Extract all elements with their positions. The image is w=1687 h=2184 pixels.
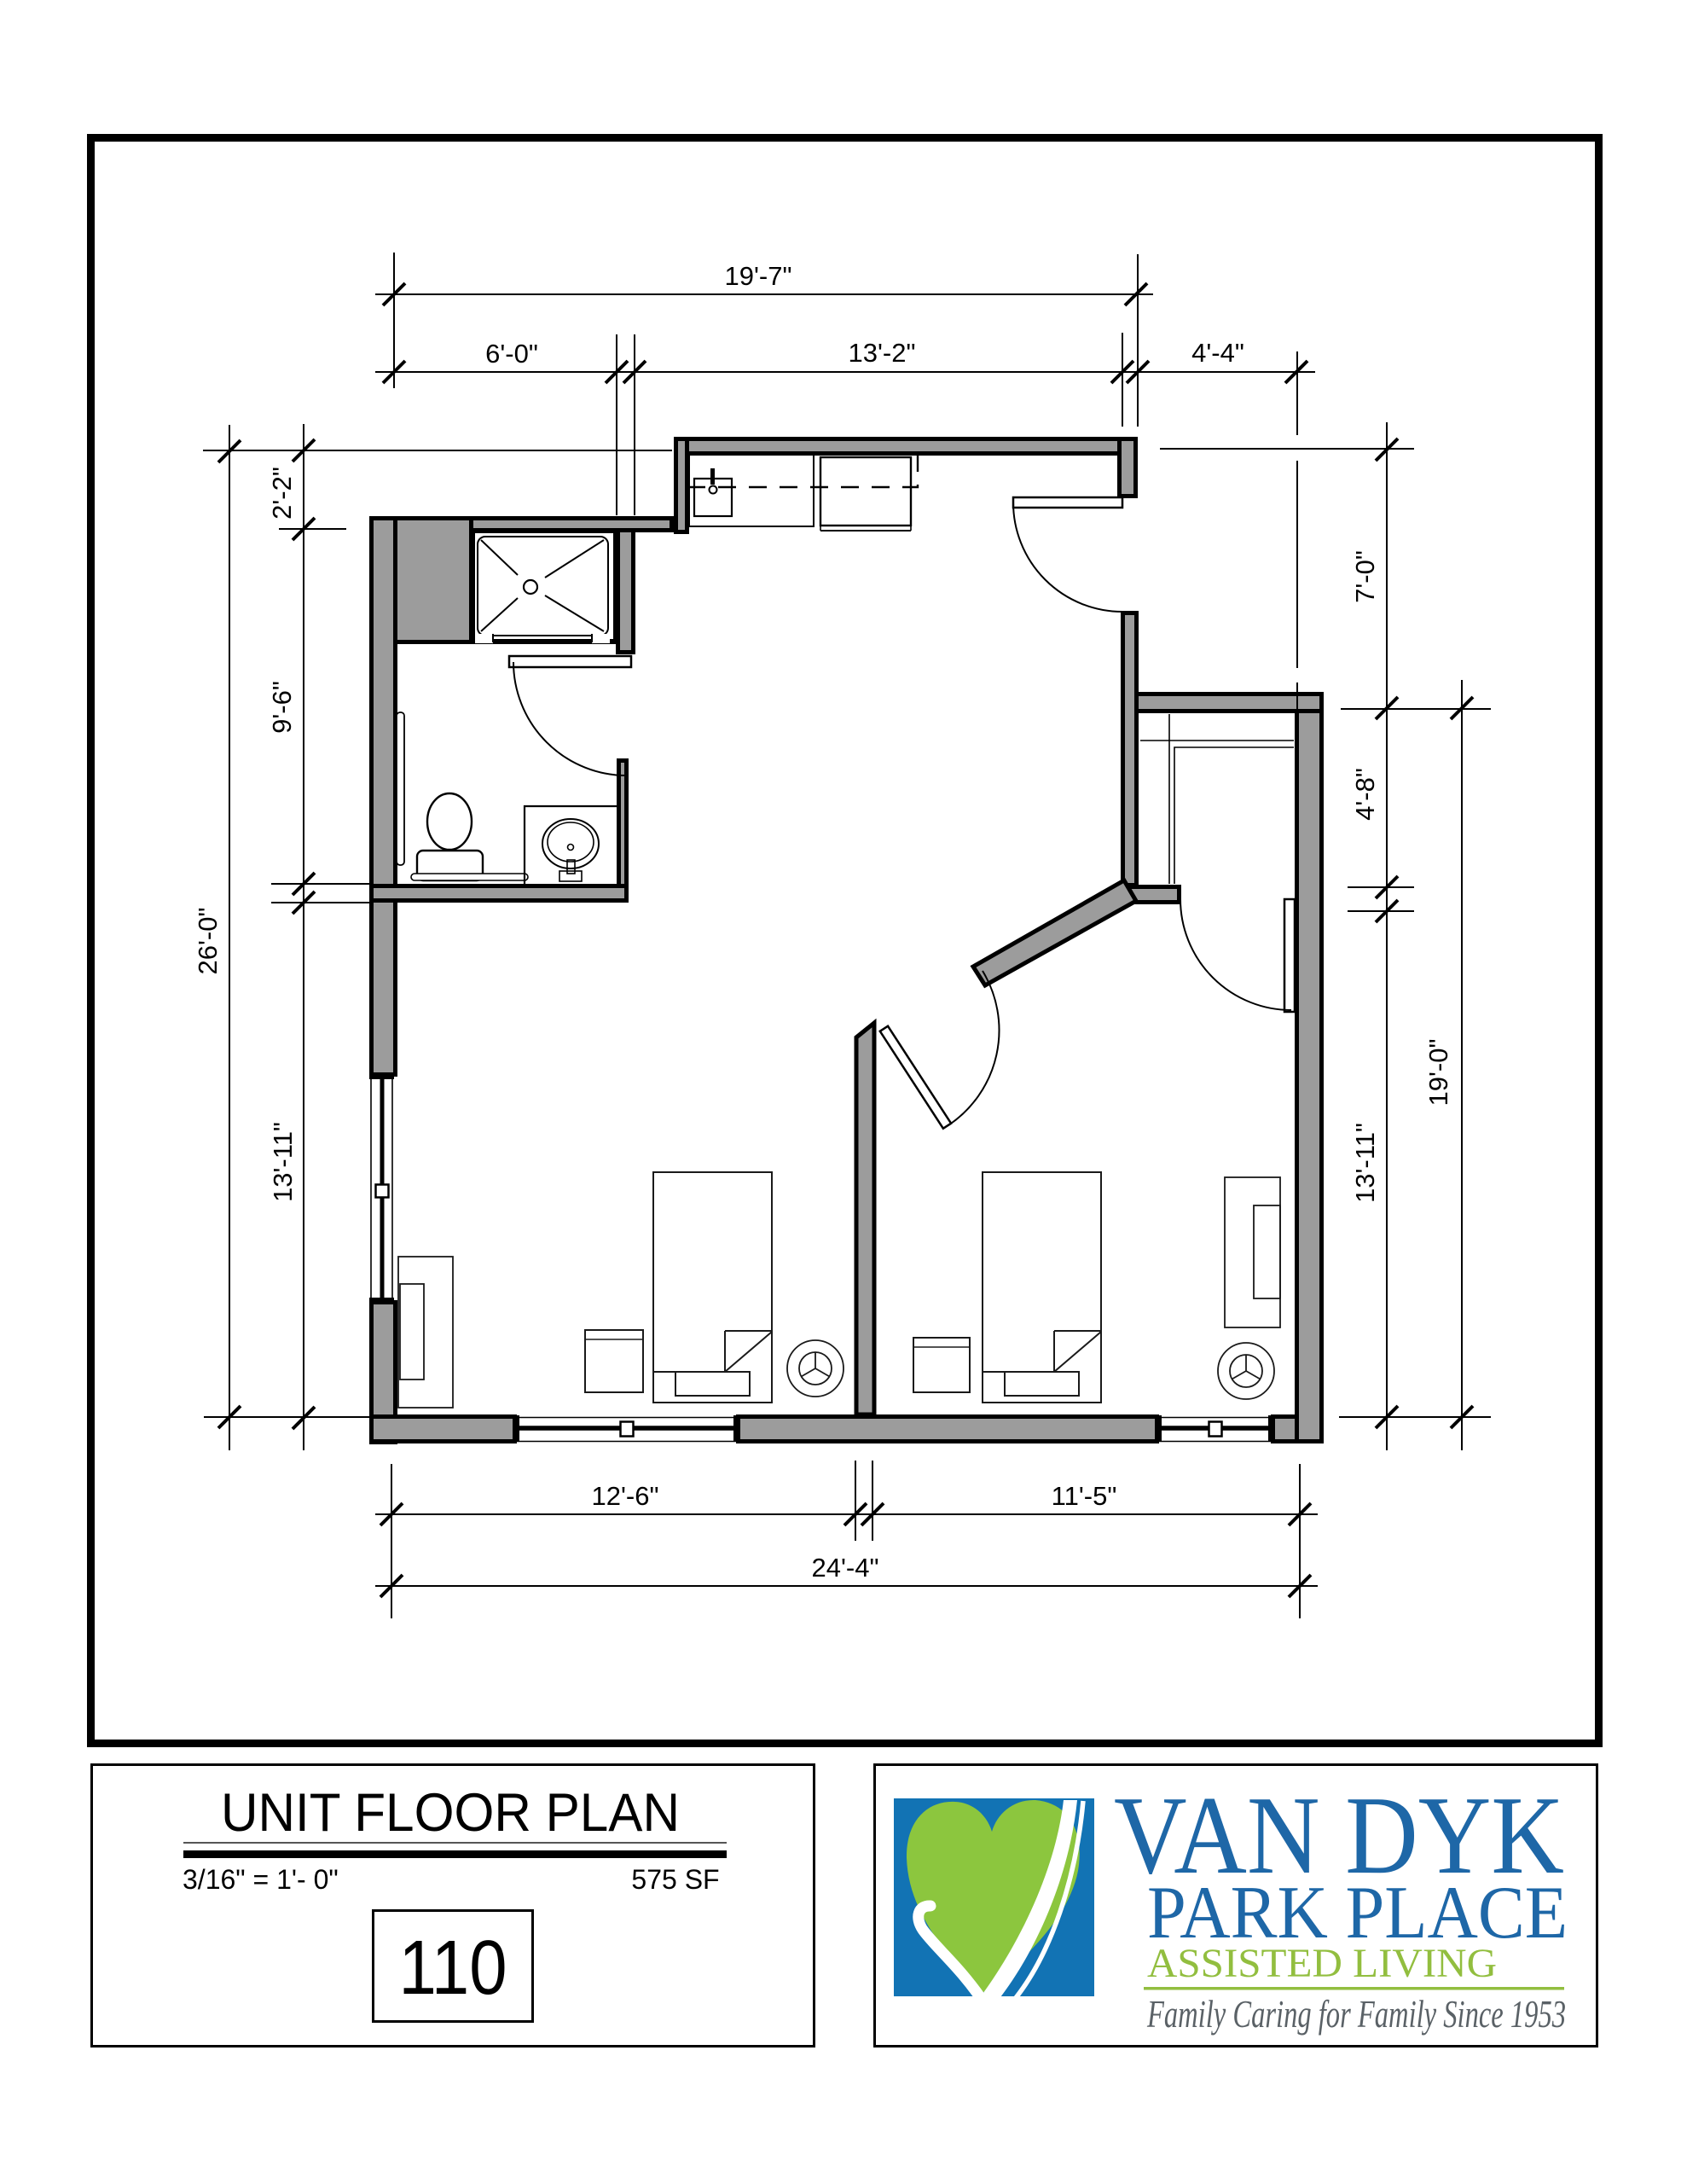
svg-text:13'-11": 13'-11"	[268, 1122, 298, 1202]
svg-text:UNIT FLOOR PLAN: UNIT FLOOR PLAN	[221, 1783, 680, 1843]
svg-text:3/16" = 1'- 0": 3/16" = 1'- 0"	[183, 1864, 339, 1895]
svg-text:11'-5": 11'-5"	[1052, 1481, 1117, 1511]
svg-text:Family Caring for Family Since: Family Caring for Family Since 1953	[1146, 1993, 1566, 2036]
svg-text:13'-11": 13'-11"	[1350, 1123, 1380, 1203]
svg-text:4'-8": 4'-8"	[1350, 768, 1380, 821]
svg-text:110: 110	[399, 1926, 507, 2011]
svg-text:26'-0": 26'-0"	[193, 908, 223, 975]
svg-text:4'-4": 4'-4"	[1191, 338, 1244, 368]
svg-text:7'-0": 7'-0"	[1350, 550, 1380, 603]
svg-text:24'-4": 24'-4"	[812, 1553, 879, 1583]
svg-text:575 SF: 575 SF	[631, 1864, 719, 1895]
svg-text:12'-6": 12'-6"	[592, 1481, 659, 1511]
svg-text:19'-7": 19'-7"	[725, 261, 792, 291]
svg-text:6'-0": 6'-0"	[485, 339, 538, 369]
svg-text:13'-2": 13'-2"	[849, 338, 916, 368]
svg-text:19'-0": 19'-0"	[1423, 1039, 1453, 1107]
svg-text:9'-6": 9'-6"	[267, 681, 297, 734]
svg-text:2'-2": 2'-2"	[267, 467, 297, 520]
svg-text:ASSISTED LIVING: ASSISTED LIVING	[1147, 1941, 1497, 1986]
